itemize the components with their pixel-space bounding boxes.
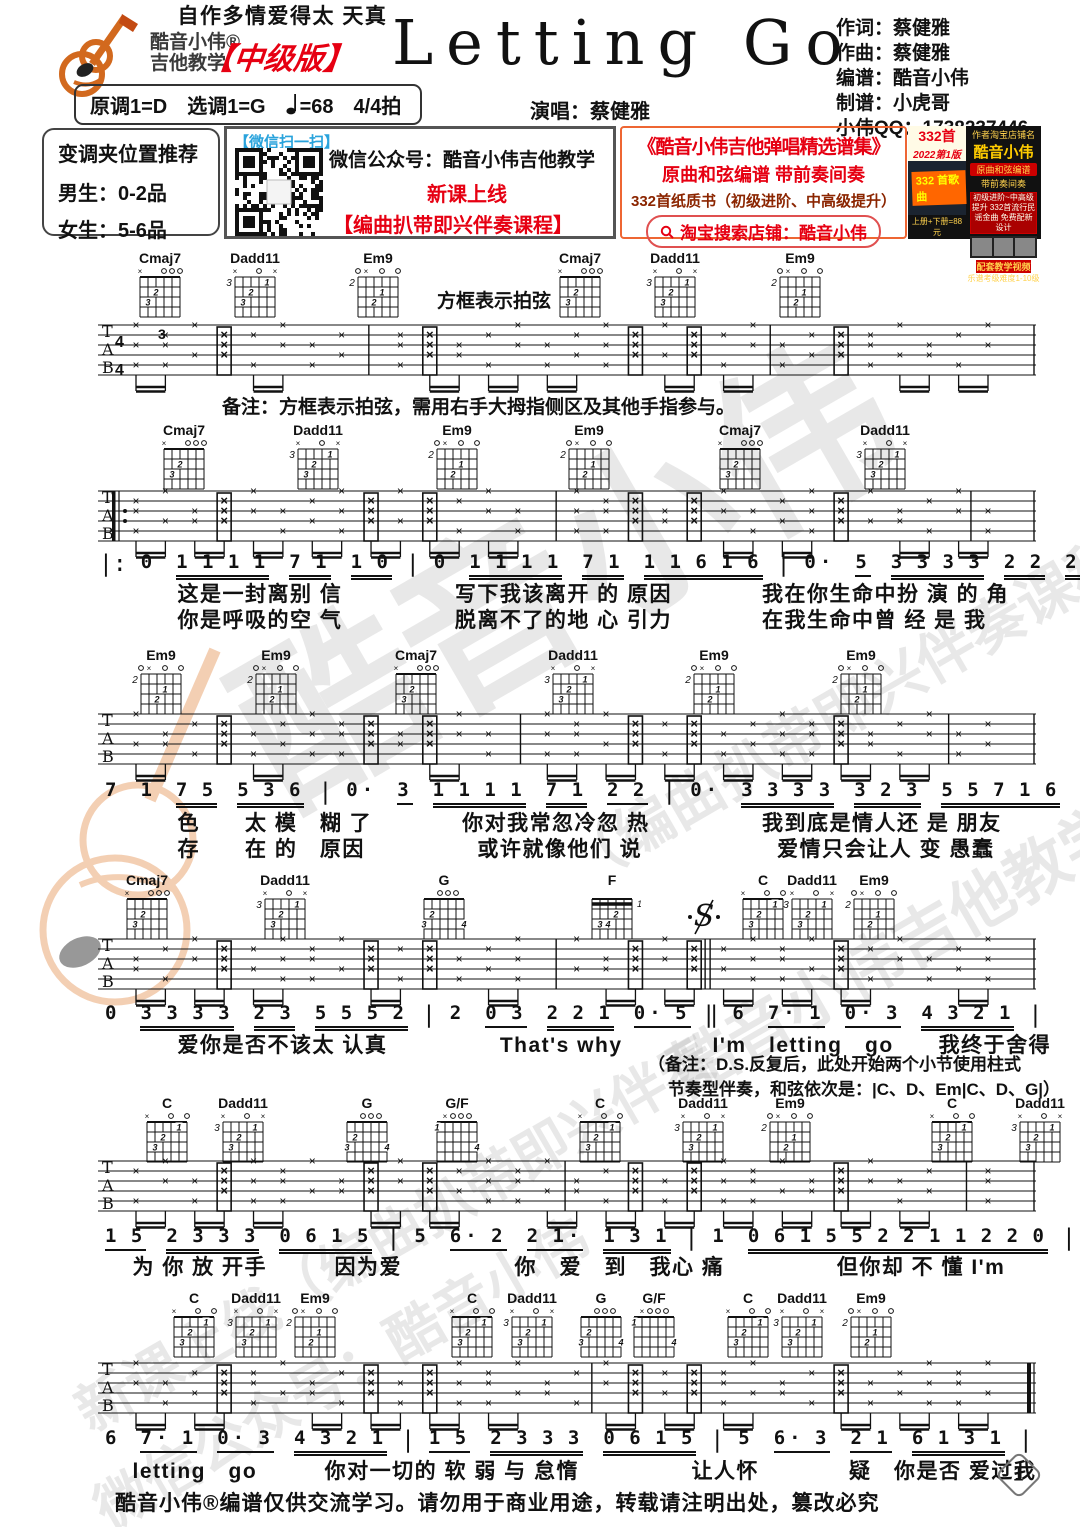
measure-bar: |	[422, 1002, 436, 1028]
svg-text:×: ×	[741, 889, 746, 898]
svg-text:×: ×	[749, 717, 756, 731]
melody-group: 6	[105, 1427, 120, 1451]
svg-text:×: ×	[867, 737, 874, 751]
svg-text:×: ×	[837, 347, 845, 362]
chord-diagram-G_F: G/F×14	[625, 1290, 683, 1356]
measure-bar: |	[1019, 1427, 1033, 1453]
svg-text:×: ×	[808, 1396, 815, 1410]
svg-text:×: ×	[336, 439, 341, 448]
svg-text:2: 2	[159, 1133, 165, 1143]
svg-text:×: ×	[191, 514, 198, 528]
svg-text:×: ×	[955, 962, 962, 976]
svg-text:×: ×	[426, 961, 434, 976]
svg-text:×: ×	[867, 338, 874, 352]
svg-text:×: ×	[779, 952, 786, 966]
wechat-new-course: 新课上线	[427, 178, 507, 207]
svg-text:×: ×	[456, 1376, 463, 1390]
svg-text:×: ×	[867, 358, 874, 372]
svg-text:2: 2	[286, 1318, 292, 1329]
chord-name-label: Dadd11	[856, 422, 914, 438]
svg-text:×: ×	[749, 318, 756, 332]
svg-text:1: 1	[811, 1318, 816, 1328]
svg-text:×: ×	[926, 972, 933, 986]
svg-text:1: 1	[637, 899, 641, 909]
melody-group: 1 3 1	[603, 1225, 670, 1254]
svg-text:×: ×	[426, 1385, 434, 1400]
svg-text:×: ×	[926, 1396, 933, 1410]
svg-text:×: ×	[926, 1356, 933, 1370]
svg-text:×: ×	[514, 1194, 521, 1208]
svg-text:×: ×	[338, 484, 345, 498]
svg-text:2: 2	[612, 910, 618, 920]
svg-text:×: ×	[867, 484, 874, 498]
taobao-search-pill: 淘宝搜索店铺：酷音小伟	[646, 215, 881, 248]
svg-text:×: ×	[603, 1194, 610, 1208]
svg-text:×: ×	[485, 484, 492, 498]
svg-text:×: ×	[984, 318, 991, 332]
svg-text:×: ×	[397, 514, 404, 528]
melody-group: 7	[105, 779, 120, 803]
melody-group: 2 3 3 3	[166, 1225, 259, 1254]
svg-text:×: ×	[726, 1307, 731, 1316]
svg-text:×: ×	[955, 1376, 962, 1390]
svg-text:A: A	[101, 1176, 114, 1195]
svg-text:×: ×	[191, 1386, 198, 1400]
svg-text:×: ×	[896, 717, 903, 731]
svg-text:×: ×	[603, 1356, 610, 1370]
svg-text:2: 2	[152, 288, 158, 298]
svg-text:×: ×	[573, 747, 580, 761]
svg-text:×: ×	[191, 717, 198, 731]
svg-text:2: 2	[1032, 1133, 1038, 1143]
svg-text:×: ×	[132, 1376, 139, 1390]
svg-text:×: ×	[250, 962, 257, 976]
svg-text:×: ×	[279, 932, 286, 946]
lyric-line: letting go 你对一切的 软 弱 与 怠惰 让人怀 疑 你是否 爱过我	[110, 1455, 1036, 1485]
ds-note-line1: （备注：D.S.反复后，此处开始两个小节使用柱式	[648, 1050, 1021, 1075]
svg-text:×: ×	[191, 318, 198, 332]
svg-text:×: ×	[749, 1174, 756, 1188]
svg-text:×: ×	[896, 348, 903, 362]
svg-text:×: ×	[397, 737, 404, 751]
melody-line: |:01 1 1 17 11 0|01 1 1 17 11 1 6 1 6|0·…	[105, 551, 1050, 580]
svg-text:2: 2	[235, 1133, 241, 1143]
svg-text:2: 2	[560, 450, 566, 461]
capo-male: 男生：0-2品	[58, 177, 218, 206]
svg-text:1: 1	[481, 1318, 486, 1328]
svg-text:3: 3	[773, 1318, 779, 1329]
svg-text:×: ×	[544, 338, 551, 352]
svg-text:3: 3	[517, 1338, 522, 1348]
svg-text:×: ×	[578, 1112, 583, 1121]
svg-text:×: ×	[279, 318, 286, 332]
svg-text:×: ×	[338, 1366, 345, 1380]
svg-text:×: ×	[837, 961, 845, 976]
svg-text:×: ×	[926, 952, 933, 966]
svg-text:×: ×	[661, 1386, 668, 1400]
svg-text:×: ×	[162, 1174, 169, 1188]
measure-bar: |	[685, 1225, 699, 1251]
svg-text:×: ×	[132, 962, 139, 976]
svg-text:A: A	[101, 340, 114, 359]
svg-text:×: ×	[397, 358, 404, 372]
measure-bar: |	[1028, 1002, 1042, 1028]
svg-text:T: T	[102, 1360, 113, 1379]
chord-name-label: F	[583, 872, 641, 888]
svg-text:2: 2	[585, 1328, 591, 1338]
chord-name-label: Em9	[685, 647, 743, 663]
svg-text:×: ×	[309, 707, 316, 721]
svg-text:2: 2	[804, 910, 810, 920]
svg-text:×: ×	[485, 504, 492, 518]
svg-text:×: ×	[250, 727, 257, 741]
svg-text:1: 1	[801, 288, 806, 298]
svg-text:×: ×	[779, 1154, 786, 1168]
svg-text:B: B	[102, 972, 114, 991]
svg-text:2: 2	[176, 460, 182, 470]
svg-text:2: 2	[524, 1328, 530, 1338]
svg-text:2: 2	[944, 1133, 950, 1143]
lyric-line: 存 在 的 原因 或许就像他们 说 爱情只会让人 变 愚蠢	[110, 833, 994, 863]
svg-text:×: ×	[661, 952, 668, 966]
svg-text:×: ×	[632, 513, 640, 528]
svg-text:1: 1	[541, 1318, 546, 1328]
svg-text:×: ×	[573, 1366, 580, 1380]
svg-text:×: ×	[279, 1356, 286, 1370]
svg-text:×: ×	[661, 747, 668, 761]
svg-text:×: ×	[147, 664, 152, 673]
melody-group: 2 1·	[527, 1225, 584, 1251]
chord-diagram-Dadd11: Dadd11××3321	[226, 250, 284, 316]
svg-text:1: 1	[684, 278, 689, 288]
svg-text:×: ×	[426, 736, 434, 751]
svg-text:×: ×	[926, 524, 933, 538]
svg-text:×: ×	[456, 494, 463, 508]
svg-text:1: 1	[264, 278, 269, 288]
melody-group: 3 3 3 3	[140, 1002, 233, 1031]
svg-text:3: 3	[1011, 1123, 1017, 1134]
svg-text:2: 2	[247, 675, 253, 686]
melody-line: 03 3 3 32 35 5 5 2|20 32 2 10· 5‖67· 10·…	[105, 1002, 1050, 1031]
svg-text:×: ×	[926, 494, 933, 508]
svg-text:3: 3	[783, 900, 789, 911]
svg-text:×: ×	[250, 1174, 257, 1188]
chord-name-label: G/F	[428, 1095, 486, 1111]
chord-name-label: Dadd11	[503, 1290, 561, 1306]
svg-text:2: 2	[685, 675, 691, 686]
svg-text:×: ×	[779, 338, 786, 352]
melody-group: 0·	[346, 779, 377, 803]
chord-name-label: Dadd11	[773, 1290, 831, 1306]
svg-text:×: ×	[233, 267, 238, 276]
svg-text:×: ×	[250, 747, 257, 761]
svg-text:×: ×	[514, 338, 521, 352]
svg-text:1: 1	[252, 1123, 257, 1133]
chord-name-label: Dadd11	[214, 1095, 272, 1111]
svg-text:×: ×	[984, 1386, 991, 1400]
svg-text:2: 2	[792, 298, 798, 308]
svg-text:×: ×	[191, 747, 198, 761]
svg-text:×: ×	[162, 1154, 169, 1168]
chord-diagram-Cmaj7: Cmaj7×32	[551, 250, 609, 316]
svg-text:×: ×	[896, 514, 903, 528]
svg-text:×: ×	[397, 1396, 404, 1410]
svg-text:×: ×	[632, 736, 640, 751]
svg-text:×: ×	[690, 347, 698, 362]
melody-group: 3 3 3 3	[891, 551, 984, 580]
svg-text:2: 2	[842, 1318, 848, 1329]
capo-recommend-box: 变调夹位置推荐 男生：0-2品 女生：5-6品	[42, 128, 220, 236]
melody-group: 2	[450, 1002, 465, 1026]
svg-text:×: ×	[749, 338, 756, 352]
svg-text:×: ×	[837, 1385, 845, 1400]
wechat-course-name: 【编曲扒带即兴伴奏课程】	[333, 209, 573, 238]
svg-text:×: ×	[779, 727, 786, 741]
svg-text:×: ×	[138, 267, 143, 276]
svg-text:×: ×	[367, 1183, 375, 1198]
svg-text:×: ×	[837, 1183, 845, 1198]
svg-text:×: ×	[303, 889, 308, 898]
shop-chip: 原曲和弦编谱	[970, 163, 1037, 176]
melody-group: 0 3	[485, 1002, 526, 1028]
svg-text:×: ×	[984, 504, 991, 518]
svg-text:×: ×	[720, 1396, 727, 1410]
svg-text:×: ×	[485, 1396, 492, 1410]
credits-block: 作词：蔡健雅 作曲：蔡健雅 编谱：酷音小伟 制谱：小虎哥 小伟QQ：173823…	[836, 16, 1028, 141]
melody-group: 1 1 1 1	[176, 551, 269, 580]
svg-text:×: ×	[485, 328, 492, 342]
svg-text:T: T	[102, 488, 113, 507]
melody-group: 5	[414, 1225, 429, 1249]
svg-text:4: 4	[670, 1338, 676, 1348]
svg-text:3: 3	[578, 1338, 583, 1348]
svg-text:3: 3	[241, 1338, 246, 1348]
svg-text:2: 2	[464, 1328, 470, 1338]
svg-text:1: 1	[277, 685, 282, 695]
svg-text:×: ×	[779, 514, 786, 528]
chord-name-label: Cmaj7	[551, 250, 609, 266]
chord-name-label: Em9	[771, 250, 829, 266]
svg-text:×: ×	[867, 514, 874, 528]
svg-text:×: ×	[591, 664, 596, 673]
svg-text:×: ×	[309, 952, 316, 966]
svg-text:×: ×	[700, 664, 705, 673]
svg-text:2: 2	[592, 1133, 598, 1143]
svg-text:2: 2	[572, 288, 578, 298]
svg-text:×: ×	[720, 942, 727, 956]
measure-bar: |	[710, 1427, 724, 1453]
svg-text:×: ×	[690, 1385, 698, 1400]
svg-text:1: 1	[609, 1123, 614, 1133]
svg-text:×: ×	[930, 1112, 935, 1121]
svg-text:3: 3	[457, 1338, 462, 1348]
svg-text:×: ×	[603, 338, 610, 352]
chord-diagram-C: C×321	[719, 1290, 777, 1356]
svg-text:×: ×	[220, 961, 228, 976]
svg-text:×: ×	[573, 348, 580, 362]
svg-text:×: ×	[749, 932, 756, 946]
svg-text:×: ×	[514, 1386, 521, 1400]
svg-text:2: 2	[248, 1328, 254, 1338]
svg-text:×: ×	[172, 1307, 177, 1316]
svg-text:×: ×	[279, 1386, 286, 1400]
promo-box: 《酷音小伟吉他弹唱精选谱集》 原曲和弦编谱 带前奏间奏 332首纸质书（初级进阶…	[620, 126, 907, 239]
svg-text:×: ×	[820, 1307, 825, 1316]
measure-bar: |:	[99, 551, 127, 577]
svg-text:×: ×	[309, 1386, 316, 1400]
svg-text:×: ×	[690, 736, 698, 751]
svg-text:×: ×	[456, 524, 463, 538]
svg-text:1: 1	[434, 1123, 439, 1133]
svg-text:×: ×	[456, 972, 463, 986]
svg-text:2: 2	[771, 278, 777, 289]
quarter-note-icon	[286, 92, 299, 116]
svg-text:×: ×	[132, 338, 139, 352]
svg-text:T: T	[102, 936, 113, 955]
svg-text:×: ×	[274, 1307, 279, 1316]
wechat-account: 微信公众号：酷音小伟吉他教学	[329, 145, 595, 172]
svg-text:×: ×	[749, 1356, 756, 1370]
svg-text:×: ×	[132, 1164, 139, 1178]
melody-group: 1 0	[351, 551, 392, 580]
svg-text:×: ×	[162, 484, 169, 498]
svg-text:2: 2	[408, 685, 414, 695]
svg-text:×: ×	[690, 1183, 698, 1198]
svg-text:×: ×	[544, 727, 551, 741]
shop-chip2: 带前奏间奏	[966, 177, 1041, 190]
svg-text:×: ×	[984, 1194, 991, 1208]
svg-text:×: ×	[132, 524, 139, 538]
chord-diagram-Dadd11: Dadd11××3321	[503, 1290, 561, 1356]
svg-text:×: ×	[485, 747, 492, 761]
svg-text:×: ×	[808, 348, 815, 362]
svg-text:×: ×	[926, 707, 933, 721]
svg-text:2: 2	[277, 910, 283, 920]
svg-text:×: ×	[984, 717, 991, 731]
svg-text:×: ×	[250, 504, 257, 518]
melody-group: 0	[105, 1002, 120, 1026]
svg-text:×: ×	[426, 513, 434, 528]
svg-text:×: ×	[279, 1194, 286, 1208]
melody-group: 7 1	[289, 551, 330, 580]
chord-name-label: Em9	[286, 1290, 344, 1306]
svg-text:×: ×	[984, 972, 991, 986]
melody-group: 5 5 5 2	[315, 1002, 408, 1031]
svg-text:A: A	[101, 954, 114, 973]
svg-text:×: ×	[191, 1366, 198, 1380]
svg-text:×: ×	[808, 747, 815, 761]
svg-text:×: ×	[338, 348, 345, 362]
svg-text:3: 3	[646, 278, 652, 289]
svg-text:×: ×	[162, 972, 169, 986]
svg-text:×: ×	[661, 348, 668, 362]
svg-text:A: A	[101, 1378, 114, 1397]
svg-text:×: ×	[573, 962, 580, 976]
svg-text:×: ×	[279, 338, 286, 352]
svg-text:×: ×	[394, 664, 399, 673]
svg-text:×: ×	[955, 727, 962, 741]
melody-group: 6 1 3 1	[912, 1427, 1005, 1456]
svg-text:×: ×	[690, 961, 698, 976]
video-caption: 配套教学视频	[976, 260, 1031, 273]
svg-text:×: ×	[984, 737, 991, 751]
svg-text:×: ×	[309, 972, 316, 986]
svg-text:×: ×	[661, 318, 668, 332]
svg-text:×: ×	[544, 747, 551, 761]
svg-text:×: ×	[779, 747, 786, 761]
svg-text:×: ×	[191, 952, 198, 966]
svg-text:×: ×	[338, 524, 345, 538]
melody-group: 0· 3	[845, 1002, 902, 1028]
svg-text:×: ×	[485, 1174, 492, 1188]
melody-group: 1 5	[105, 1225, 146, 1251]
svg-text:×: ×	[867, 1396, 874, 1410]
chord-name-label: Em9	[560, 422, 618, 438]
svg-text:×: ×	[790, 889, 795, 898]
svg-text:×: ×	[661, 1366, 668, 1380]
svg-text:×: ×	[456, 952, 463, 966]
svg-text:×: ×	[132, 318, 139, 332]
svg-text:×: ×	[309, 1184, 316, 1198]
svg-text:×: ×	[749, 1194, 756, 1208]
melody-group: 5	[855, 551, 870, 577]
chord-name-label: C	[719, 1290, 777, 1306]
footer-text: 酷音小伟®编谱仅供交流学习。请勿用于商业用途，转载请注明出处，篡改必究	[115, 1487, 879, 1517]
svg-text:1: 1	[590, 460, 595, 470]
svg-text:×: ×	[309, 494, 316, 508]
chord-diagram-G: G234	[572, 1290, 630, 1356]
svg-text:×: ×	[720, 1194, 727, 1208]
svg-text:×: ×	[720, 484, 727, 498]
svg-text:×: ×	[550, 1307, 555, 1316]
svg-text:×: ×	[926, 348, 933, 362]
svg-text:×: ×	[132, 737, 139, 751]
svg-text:×: ×	[984, 1174, 991, 1188]
svg-text:×: ×	[721, 1112, 726, 1121]
svg-text:×: ×	[485, 962, 492, 976]
svg-text:×: ×	[191, 932, 198, 946]
svg-text:×: ×	[338, 962, 345, 976]
svg-text:2: 2	[761, 1123, 767, 1134]
promo-badge-count: 332首	[908, 126, 966, 146]
svg-text:×: ×	[955, 942, 962, 956]
melody-group: 2 0 1 7	[1065, 551, 1080, 580]
svg-text:4: 4	[115, 334, 124, 351]
svg-text:×: ×	[955, 1396, 962, 1410]
melody-group: 3 2 3	[854, 779, 921, 808]
promo-graphic-left: 332首 2022第1版 332 首歌曲 上册+下册=88元	[908, 126, 966, 239]
svg-text:×: ×	[456, 1356, 463, 1370]
svg-text:2: 2	[139, 910, 145, 920]
svg-text:2: 2	[247, 288, 253, 298]
svg-text:×: ×	[573, 504, 580, 518]
svg-text:×: ×	[301, 1307, 306, 1316]
svg-text:×: ×	[749, 1386, 756, 1400]
measure-bar: |	[318, 779, 332, 805]
melody-group: 5 3 6	[237, 779, 304, 808]
chord-name-label: Cmaj7	[131, 250, 189, 266]
promo-line3: 332首纸质书（初级进阶、中高级提升）	[622, 190, 905, 211]
svg-text:×: ×	[485, 1376, 492, 1390]
svg-text:×: ×	[896, 1366, 903, 1380]
svg-text:×: ×	[309, 358, 316, 372]
svg-text:3: 3	[787, 1338, 792, 1348]
svg-text:1: 1	[582, 675, 587, 685]
svg-text:×: ×	[786, 267, 791, 276]
svg-text:×: ×	[808, 727, 815, 741]
svg-text:×: ×	[1018, 1112, 1023, 1121]
svg-text:2: 2	[863, 1338, 869, 1348]
